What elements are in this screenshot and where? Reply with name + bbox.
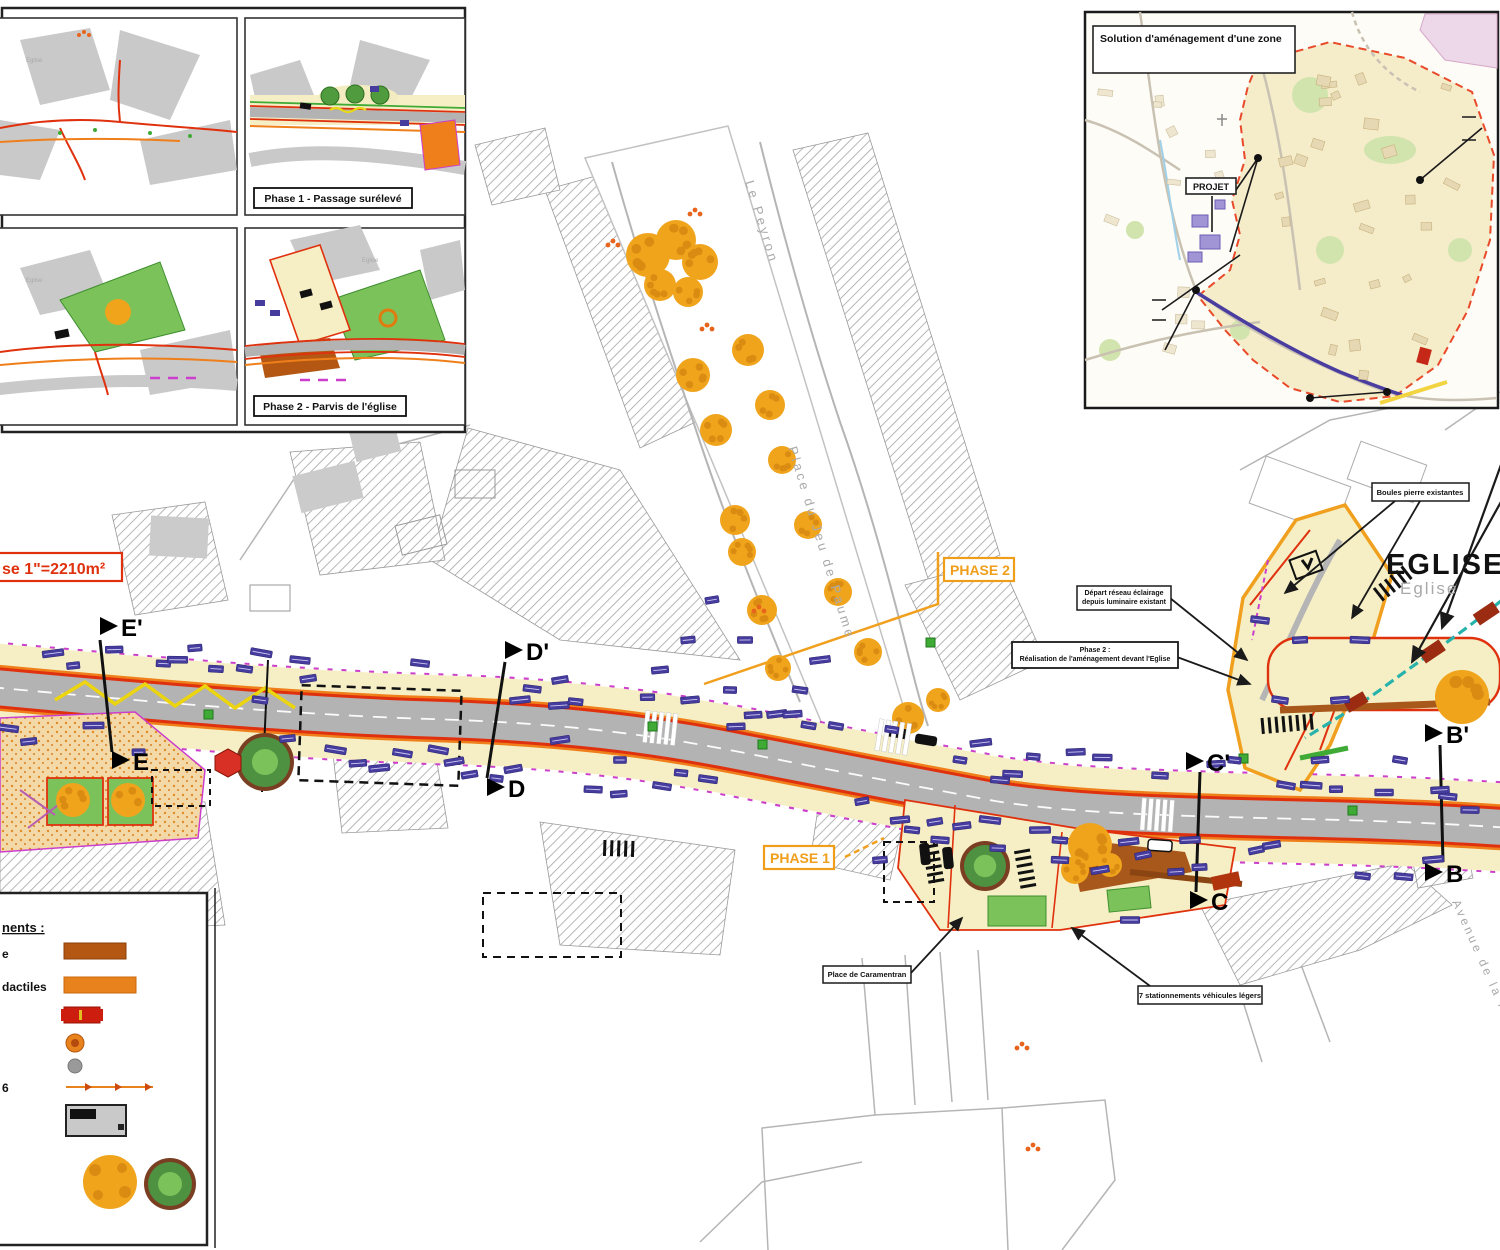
svg-text:D': D' <box>526 639 549 666</box>
svg-text:Place de Caramentran: Place de Caramentran <box>828 970 907 979</box>
panel1-caption: Phase 1 - Passage surélevé <box>254 188 412 208</box>
eglise-subtitle: Eglise <box>1400 579 1458 598</box>
svg-text:Boules pierre existantes: Boules pierre existantes <box>1377 488 1464 497</box>
inset-panels: Eglise Phase 1 - Passage surélevé <box>0 8 465 432</box>
eglise-title: EGLISE <box>1386 549 1500 581</box>
svg-text:B': B' <box>1446 722 1469 749</box>
site-plan-canvas: Le Peyron Place du Jeu de Paume Avenue d… <box>0 0 1500 1250</box>
callout-depart-reseau: Départ réseau éclairage depuis luminaire… <box>1077 586 1171 610</box>
kiosk-hexagon <box>215 749 241 777</box>
location-map: Solution d'aménagement d'une zone PROJET <box>1085 12 1498 408</box>
panel2-caption: Phase 2 - Parvis de l'église <box>254 396 406 416</box>
section-marker-b-prime: B' <box>1425 722 1469 749</box>
phase1-label: PHASE 1 <box>764 846 834 869</box>
section-marker-d-prime: D' <box>505 639 549 666</box>
legend-item6-label: 6 <box>2 1081 9 1095</box>
callout-boules: Boules pierre existantes <box>1372 483 1469 501</box>
street-avenue-fontaine: Avenue de la Fontaine <box>1449 898 1500 1071</box>
svg-text:Phase 1 - Passage surélevé: Phase 1 - Passage surélevé <box>264 193 401 205</box>
panel-existing-state: Eglise <box>0 18 237 215</box>
phase2-label: PHASE 2 <box>944 558 1014 581</box>
svg-text:C': C' <box>1207 750 1230 777</box>
legend-swatch-podotactile <box>64 977 136 993</box>
legend-swatch-arbre-vert <box>144 1158 196 1210</box>
panel4-eglise: Eglise <box>362 258 379 264</box>
legend-item2-label: dactiles <box>2 980 47 994</box>
legend-swatch-passage <box>61 1007 103 1023</box>
legend-swatch-arbre-orange <box>83 1155 137 1209</box>
legend-swatch-potelet <box>68 1059 82 1073</box>
legend-swatch-borne <box>66 1034 84 1052</box>
callout-stationnements: 7 stationnements véhicules légers <box>1138 986 1262 1004</box>
map-projet-label: PROJET <box>1186 178 1236 194</box>
svg-text:Départ réseau éclairage: Départ réseau éclairage <box>1085 590 1164 597</box>
panel-phase2-parvis: Eglise Phase 2 - Parvis de l'église <box>245 225 465 425</box>
svg-text:PROJET: PROJET <box>1193 182 1230 192</box>
callout-phase2-realisation: Phase 2 : Réalisation de l'aménagement d… <box>1012 642 1178 668</box>
callout-caramentran: Place de Caramentran <box>823 966 911 983</box>
map-title-box: Solution d'aménagement d'une zone <box>1093 26 1295 73</box>
phase1-area-label: se 1"=2210m² <box>0 553 122 581</box>
svg-text:B: B <box>1446 861 1463 888</box>
panel-phase1-passage: Phase 1 - Passage surélevé <box>245 18 465 215</box>
svg-text:se 1"=2210m²: se 1"=2210m² <box>2 561 105 578</box>
svg-text:7 stationnements véhicules lég: 7 stationnements véhicules légers <box>1139 991 1261 1000</box>
legend: nents : e dactiles 6 <box>0 888 215 1248</box>
panel1-eglise: Eglise <box>26 58 43 64</box>
svg-text:Phase 2 :: Phase 2 : <box>1080 647 1111 654</box>
svg-text:C: C <box>1211 889 1228 916</box>
legend-item1-label: e <box>2 947 9 961</box>
legend-swatch-resine <box>64 943 126 959</box>
svg-text:depuis luminaire existant: depuis luminaire existant <box>1082 599 1167 606</box>
svg-text:E: E <box>133 749 149 776</box>
svg-text:Réalisation de l'aménagement d: Réalisation de l'aménagement devant l'Eg… <box>1020 656 1171 663</box>
panel3-eglise: Eglise <box>26 278 43 284</box>
legend-header: nents : <box>2 920 45 935</box>
panel-project-overview: Eglise <box>0 228 237 425</box>
legend-swatch-abri <box>66 1105 126 1136</box>
svg-text:PHASE 1: PHASE 1 <box>770 850 830 866</box>
svg-text:D: D <box>508 776 525 803</box>
section-marker-e-prime: E' <box>100 615 143 642</box>
svg-text:Phase 2 - Parvis de l'église: Phase 2 - Parvis de l'église <box>263 401 397 413</box>
svg-text:Solution d'aménagement d'une z: Solution d'aménagement d'une zone <box>1100 33 1282 45</box>
svg-text:PHASE 2: PHASE 2 <box>950 562 1010 578</box>
svg-text:E': E' <box>121 615 143 642</box>
